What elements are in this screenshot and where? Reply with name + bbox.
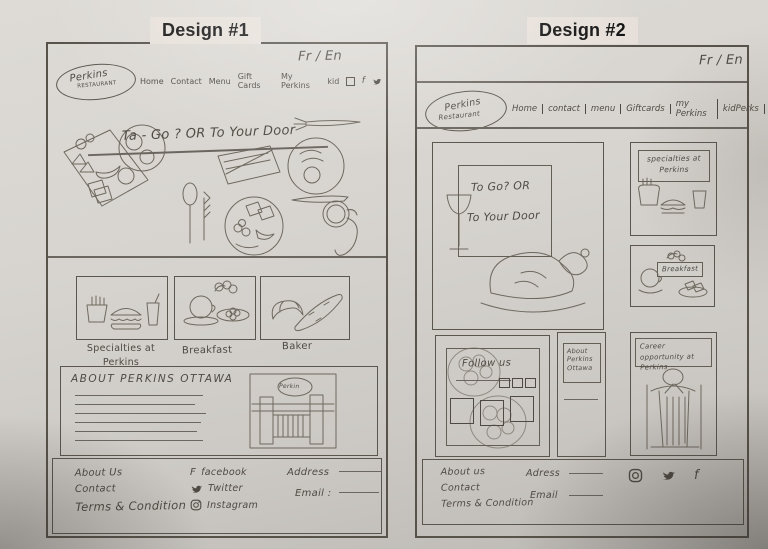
- wireframe-photo: Design #1 Design #2 Fr / En Perkins REST…: [0, 0, 768, 549]
- d2-topbar-divider: [417, 81, 747, 83]
- d1-footer-terms-link: Terms & Condition: [75, 498, 186, 514]
- d1-about-title: ABOUT PERKINS OTTAWA: [71, 373, 233, 385]
- d1-about-textline: [75, 404, 195, 405]
- design1-title: Design #1: [150, 17, 261, 44]
- d2-address-line: [569, 473, 603, 475]
- instagram-icon: [628, 468, 643, 483]
- d1-baker-sketch: [261, 277, 347, 337]
- d1-storefront-sign: Perkin: [279, 383, 300, 390]
- d2-about-tile: About Perkins Ottawa: [557, 332, 606, 457]
- d1-footer-about-link: About Us: [75, 466, 186, 479]
- d1-card-specialties: [76, 276, 168, 340]
- facebook-icon: F: [190, 467, 196, 478]
- d2-breakfast-label-box: Breakfast: [657, 262, 703, 277]
- d2-career-tile: Career opportunity at Perkins: [630, 332, 717, 456]
- twitter-icon: [372, 77, 382, 86]
- d1-email-label: Email :: [295, 488, 331, 499]
- d1-facebook-label: facebook: [201, 467, 247, 478]
- d1-card-baker: [260, 276, 350, 340]
- d2-footer-social-icons: f: [628, 468, 699, 483]
- d1-nav-kid: kid: [327, 77, 339, 86]
- instagram-icon: [346, 77, 354, 86]
- d2-follow-thumb-small: [499, 378, 510, 388]
- d2-nav-contact: contact: [543, 104, 586, 114]
- d1-address-line: [339, 471, 381, 473]
- d2-language-toggle: Fr / En: [699, 53, 743, 69]
- d1-nav: Home Contact Menu Gift Cards My Perkins …: [140, 72, 382, 90]
- d2-nav-menu: menu: [586, 104, 621, 114]
- d2-follow-thumb-large: [480, 400, 504, 426]
- d1-section-divider: [48, 256, 386, 258]
- d1-card-breakfast-label: Breakfast: [182, 345, 232, 357]
- d2-hero-line2: To Your Door: [467, 209, 540, 225]
- design2-wireframe: Fr / En Perkins Restaurant Home contact …: [415, 45, 749, 538]
- d1-breakfast-sketch: [175, 277, 253, 337]
- d2-nav-kidperks: kidPerks: [718, 104, 765, 114]
- d2-specialties-label: specialties at Perkins: [643, 153, 705, 175]
- d2-hero-line1: To Go? OR: [471, 179, 531, 194]
- d1-logo: Perkins RESTAURANT: [55, 61, 138, 104]
- d1-footer-links: About Us Contact Terms & Condition: [75, 466, 187, 519]
- twitter-icon: [661, 470, 676, 481]
- d1-footer-contact-link: Contact: [75, 482, 186, 495]
- d1-footer: About Us Contact Terms & Condition F fac…: [52, 458, 382, 534]
- d1-card-baker-label: Baker: [282, 341, 312, 353]
- d2-follow-tile: Follow us: [435, 335, 550, 457]
- d1-twitter-label: Twitter: [208, 483, 243, 494]
- d1-nav-menu: Menu: [209, 77, 231, 86]
- d1-about-textline: [75, 431, 197, 432]
- d2-follow-thumb-small: [525, 378, 536, 388]
- d2-follow-label: Follow us: [462, 358, 511, 370]
- d2-specialties-label-box: specialties at Perkins: [638, 150, 710, 182]
- d2-nav-divider: [417, 127, 747, 129]
- d2-follow-thumb-large: [510, 396, 534, 422]
- d2-footer-terms-link: Terms & Condition: [441, 497, 534, 510]
- d1-address-label: Address: [287, 467, 329, 478]
- d1-nav-myperkins: My Perkins: [281, 72, 320, 90]
- d2-nav-home: Home: [507, 104, 543, 114]
- d1-about-textline: [75, 440, 203, 441]
- d2-email-line: [569, 495, 603, 497]
- d1-footer-social: F facebook Twitter Instagram: [190, 467, 258, 511]
- d2-specialties-tile: specialties at Perkins: [630, 142, 717, 236]
- d2-about-textline: [564, 399, 598, 400]
- d2-follow-thumb-small: [512, 378, 523, 388]
- d2-follow-thumb-large: [450, 398, 474, 424]
- d1-about-textline: [75, 413, 206, 414]
- d1-about-section: ABOUT PERKINS OTTAWA Perkin: [60, 366, 378, 456]
- d1-nav-home: Home: [140, 77, 164, 86]
- d2-breakfast-tile: Breakfast: [630, 245, 715, 307]
- d2-footer-contact-link: Contact: [441, 481, 534, 494]
- d2-about-label: About Perkins Ottawa: [567, 347, 597, 373]
- d1-instagram-label: Instagram: [207, 500, 258, 511]
- d2-career-label-box: Career opportunity at Perkins: [635, 338, 712, 367]
- d2-nav-giftcards: Giftcards: [621, 104, 670, 114]
- d2-nav: Home contact menu Giftcards my Perkins k…: [507, 99, 768, 119]
- d1-nav-contact: Contact: [171, 77, 202, 86]
- d2-footer-links: About us Contact Terms & Condition: [441, 465, 534, 515]
- design1-wireframe: Fr / En Perkins RESTAURANT Home Contact …: [46, 42, 388, 538]
- d1-language-toggle: Fr / En: [298, 49, 342, 65]
- design2-title: Design #2: [527, 17, 638, 44]
- twitter-icon: [190, 484, 203, 494]
- d1-specialties-sketch: [77, 277, 165, 337]
- d2-footer-about-link: About us: [441, 465, 534, 478]
- d2-about-label-box: About Perkins Ottawa: [563, 343, 601, 383]
- d1-about-textline: [75, 422, 201, 423]
- d2-nav-myperkins: my Perkins: [671, 99, 718, 119]
- d2-email-label: Email: [530, 490, 558, 501]
- d2-hero-tile: To Go? OR To Your Door: [432, 142, 604, 330]
- d2-footer-contact-info: Adress Email: [526, 468, 597, 501]
- facebook-icon: f: [362, 76, 365, 86]
- d1-footer-contact-info: Address Email :: [287, 467, 375, 499]
- instagram-icon: [190, 499, 202, 511]
- d1-nav-giftcards: Gift Cards: [238, 72, 274, 90]
- d1-about-textline: [75, 395, 203, 396]
- d1-card-breakfast: [174, 276, 256, 340]
- facebook-icon: f: [694, 468, 699, 483]
- d2-address-label: Adress: [526, 468, 560, 479]
- d1-email-line: [339, 492, 379, 494]
- d2-hero-label-box: To Go? OR To Your Door: [458, 165, 552, 257]
- d1-storefront-image: Perkin: [249, 373, 337, 449]
- d2-breakfast-label: Breakfast: [662, 265, 698, 274]
- d2-career-person-sketch: [631, 367, 714, 453]
- d2-footer: About us Contact Terms & Condition Adres…: [422, 459, 744, 525]
